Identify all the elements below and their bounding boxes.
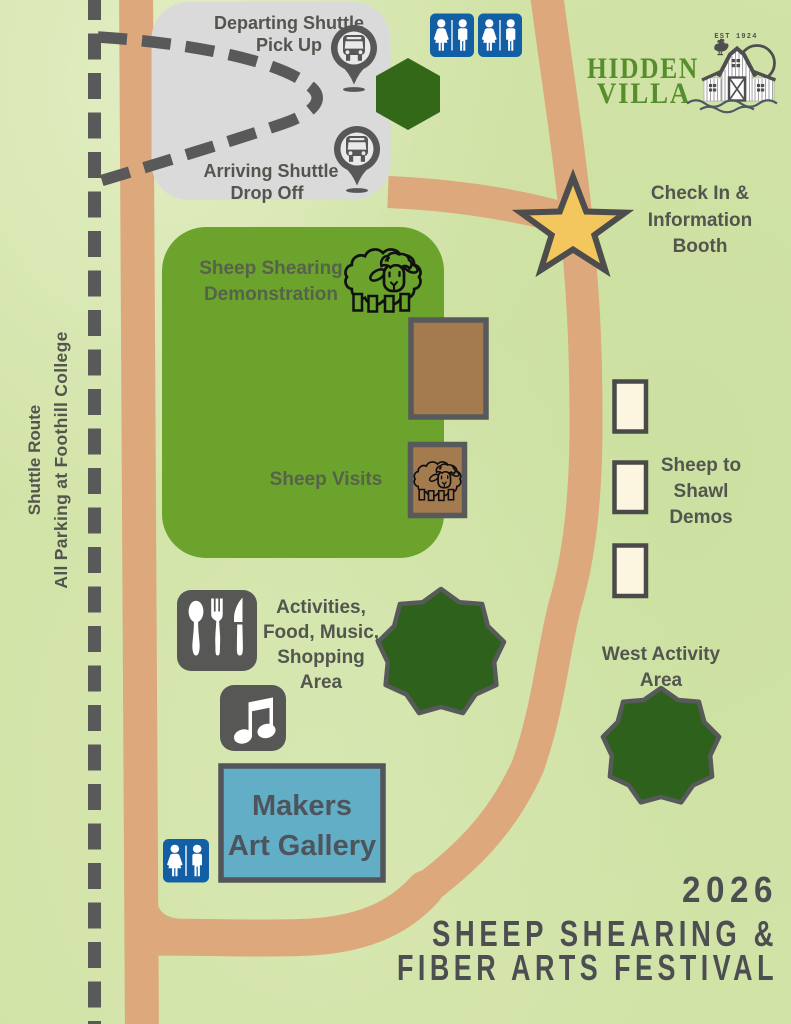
svg-text:FIBER ARTS FESTIVAL: FIBER ARTS FESTIVAL	[397, 947, 778, 988]
svg-text:Sheep to: Sheep to	[661, 455, 741, 476]
svg-text:Sheep Shearing: Sheep Shearing	[199, 258, 343, 279]
svg-text:All Parking at Foothill Colleg: All Parking at Foothill College	[51, 331, 71, 588]
svg-text:2026: 2026	[682, 869, 778, 910]
svg-text:Check In &: Check In &	[651, 183, 749, 204]
svg-text:Activities,: Activities,	[276, 597, 366, 618]
svg-text:Area: Area	[300, 672, 343, 693]
svg-text:Booth: Booth	[673, 236, 728, 257]
svg-text:Art Gallery: Art Gallery	[228, 830, 376, 862]
svg-text:VILLA: VILLA	[597, 77, 691, 110]
svg-text:Demos: Demos	[669, 507, 732, 528]
svg-text:Area: Area	[640, 670, 683, 691]
svg-text:Drop Off: Drop Off	[231, 183, 305, 203]
svg-text:Information: Information	[648, 210, 753, 231]
svg-text:Food, Music,: Food, Music,	[263, 622, 379, 643]
svg-text:Shuttle Route: Shuttle Route	[25, 405, 44, 516]
svg-text:Shopping: Shopping	[277, 647, 365, 668]
svg-text:Arriving Shuttle: Arriving Shuttle	[203, 161, 338, 181]
svg-text:Makers: Makers	[252, 790, 352, 822]
svg-text:Pick Up: Pick Up	[256, 35, 322, 55]
svg-text:West Activity: West Activity	[602, 644, 721, 665]
svg-text:Sheep Visits: Sheep Visits	[270, 469, 383, 490]
svg-text:Demonstration: Demonstration	[204, 284, 338, 305]
svg-text:Shawl: Shawl	[674, 481, 729, 502]
